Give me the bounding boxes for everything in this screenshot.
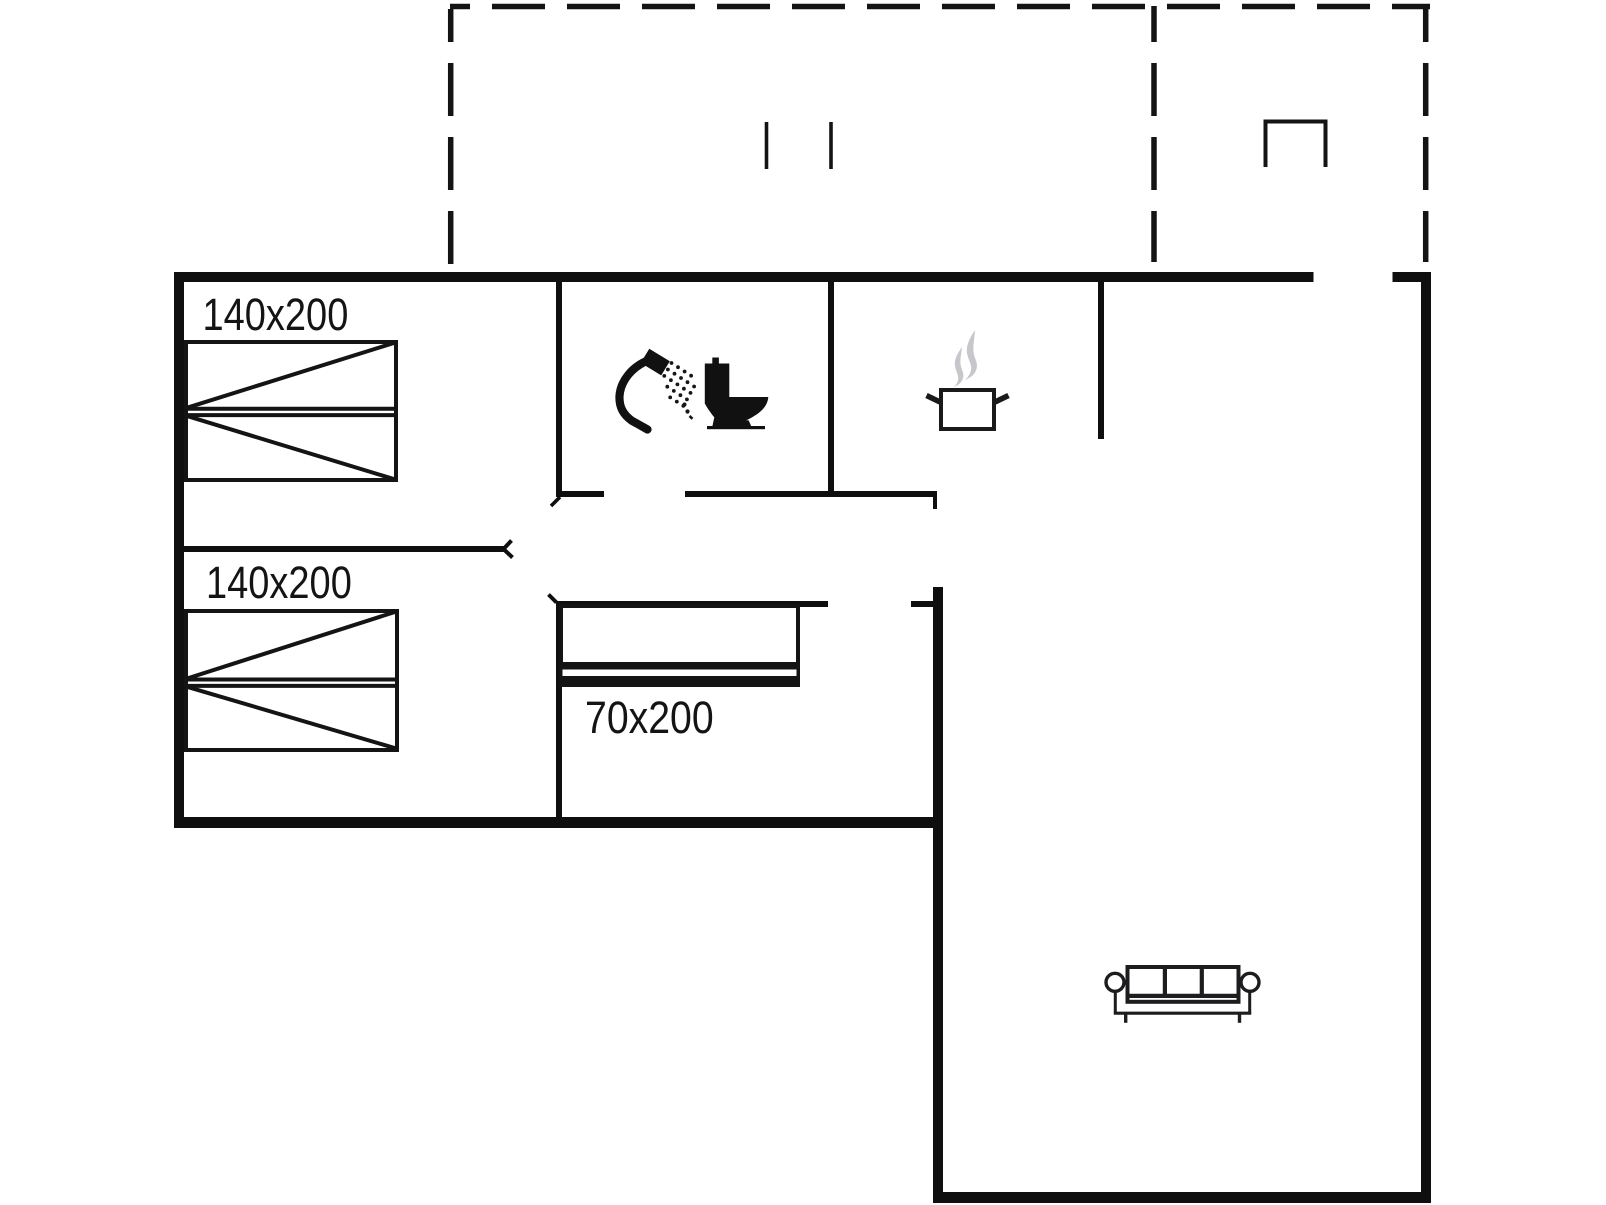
svg-text:140x200: 140x200 <box>206 557 352 608</box>
svg-text:140x200: 140x200 <box>203 289 349 340</box>
svg-text:70x200: 70x200 <box>585 692 714 742</box>
